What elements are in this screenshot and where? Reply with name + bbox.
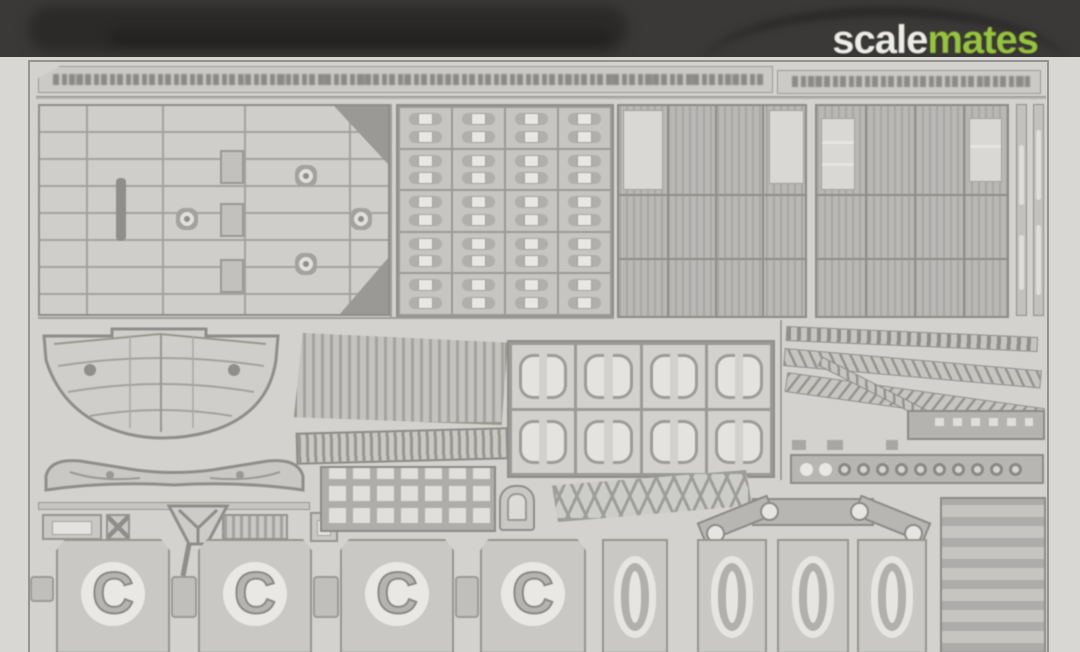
illegible-etched-text-right [792, 76, 1032, 87]
curved-platform-part [38, 320, 284, 448]
narrow-strip-part [1016, 104, 1027, 316]
door-split-line [822, 163, 854, 166]
sprue-tab [827, 440, 843, 450]
narrow-strip-part [1033, 104, 1044, 316]
deck-opening [350, 208, 372, 230]
panel-seam [619, 258, 805, 260]
ribbed-bar-part [296, 427, 509, 465]
clamp-part [400, 108, 451, 148]
x-brace-part [106, 514, 130, 540]
c-grill-ring: C [365, 562, 429, 626]
davit-bracket-pair [577, 411, 639, 474]
strip-ring [914, 463, 927, 476]
panel-seam [817, 258, 1007, 260]
angled-bracket-part [694, 492, 932, 546]
clamp-part [559, 150, 610, 190]
deck-seam [162, 106, 164, 314]
deck-opening [176, 208, 198, 230]
bracket-hole [760, 502, 779, 521]
c-grill-part: C [56, 539, 170, 652]
clamp-parts-grid [396, 104, 614, 318]
clamp-part [453, 274, 504, 314]
strip-hole [800, 463, 813, 476]
c-grill-ring: C [223, 562, 287, 626]
sprue-runner [780, 320, 782, 480]
dome-part [499, 485, 535, 531]
deck-hatch [220, 259, 244, 293]
ladder-rail-part [786, 326, 1038, 352]
c-grill-part: C [340, 539, 454, 652]
c-grill-part: C [480, 539, 586, 652]
panel-seam [817, 194, 1007, 196]
pe-fret-product-photo: scalemates [0, 0, 1080, 652]
scalemates-watermark: scalemates [832, 18, 1038, 63]
c-letter: C [92, 565, 134, 623]
panel-seam [963, 106, 965, 316]
oval-ring-part [602, 539, 668, 652]
clamp-part [506, 191, 557, 231]
clamp-part [453, 150, 504, 190]
clamp-part [506, 274, 557, 314]
clamp-part [506, 108, 557, 148]
strip-ring [1009, 463, 1022, 476]
davit-bracket-pair [512, 345, 574, 408]
blurred-package-shadow [110, 30, 610, 46]
fret-edge-text-strip-right [777, 70, 1041, 94]
strip-slot [1019, 145, 1024, 205]
oval-ring [711, 556, 753, 638]
clamp-part [400, 233, 451, 273]
davit-bracket-pair [577, 345, 639, 408]
clamp-part [559, 191, 610, 231]
photoetch-fret-plate: C C C C [28, 60, 1049, 652]
fret-edge-divider [36, 96, 1046, 99]
deck-opening [295, 165, 317, 187]
ribbed-wall-panel-right [815, 104, 1009, 318]
door-split-line [822, 141, 854, 144]
clamp-part [506, 150, 557, 190]
sprue-connector [313, 576, 339, 618]
strip-slot [1036, 225, 1041, 295]
davit-bracket-pair [512, 411, 574, 474]
part-slot [52, 521, 92, 535]
clamp-part [400, 150, 451, 190]
strip-ring [971, 463, 984, 476]
small-ribbed-part [42, 514, 102, 540]
deck-slot [116, 178, 126, 241]
panel-door [769, 110, 804, 184]
door-split-line [970, 145, 1001, 148]
panel-seam [667, 106, 669, 316]
deck-hatch [220, 203, 244, 237]
davit-bracket-pair [708, 411, 770, 474]
deck-panel-part [38, 104, 390, 316]
photo-background: C C C C [0, 57, 1080, 652]
strip-ring [838, 463, 851, 476]
panel-door [821, 118, 855, 190]
clamp-part [453, 233, 504, 273]
clamp-part [559, 108, 610, 148]
davit-bracket-pair [643, 345, 705, 408]
c-letter: C [512, 565, 554, 623]
ribbed-skewed-panel [294, 327, 508, 425]
oval-ring-part [777, 539, 849, 652]
clamp-part [453, 108, 504, 148]
deck-opening [295, 253, 317, 275]
sprue-runner [38, 317, 614, 319]
sprue-connector [30, 576, 54, 602]
deck-seam [86, 106, 88, 314]
c-grill-ring: C [81, 562, 145, 626]
strip-slot [1019, 235, 1024, 290]
sprue-tab [886, 440, 898, 450]
clamp-part [400, 191, 451, 231]
strip-ring [933, 463, 946, 476]
panel-seam [715, 106, 717, 316]
hole-strip-part [790, 454, 1044, 484]
deck-shaded-corner [334, 106, 388, 164]
strip-slot [1036, 130, 1041, 200]
c-grill-ring: C [501, 562, 565, 626]
wavy-awning-part [40, 448, 310, 500]
panel-seam [914, 106, 916, 316]
fret-parts-layer: C C C C [30, 62, 1047, 652]
panel-seam [619, 194, 805, 196]
deck-seam [244, 106, 246, 314]
c-grill-part: C [198, 539, 312, 652]
davit-bracket-pair [643, 411, 705, 474]
small-grille-part [222, 514, 288, 540]
watermark-scale-text: scale [832, 18, 927, 62]
sprue-connector [455, 576, 479, 618]
clamp-part [400, 274, 451, 314]
sprue-tab [792, 440, 806, 450]
deck-seam [349, 106, 351, 314]
strip-hole [819, 463, 832, 476]
deck-shaded-corner [340, 258, 388, 314]
sprue-runner [390, 104, 392, 318]
square-grating-part [320, 466, 496, 532]
bracket-hole [850, 502, 869, 521]
watermark-mates-text: mates [927, 18, 1038, 62]
oval-ring [871, 556, 913, 638]
panel-door [969, 118, 1002, 182]
oval-ring-part [697, 539, 767, 652]
panel-seam [762, 106, 764, 316]
oval-ring [792, 556, 834, 638]
c-letter: C [376, 565, 418, 623]
davit-bracket-pair [708, 345, 770, 408]
davit-brackets-grid [507, 340, 775, 478]
toothed-bracket-part [907, 410, 1045, 440]
oval-ring-part [857, 539, 927, 652]
clamp-part [453, 191, 504, 231]
strip-ring [857, 463, 870, 476]
oval-ring [614, 556, 656, 638]
illegible-etched-text [53, 74, 764, 85]
clamp-part [506, 233, 557, 273]
c-letter: C [234, 565, 276, 623]
ribbed-wall-panel-left [617, 104, 807, 318]
striped-ladder-panel [940, 497, 1046, 652]
panel-door [623, 110, 663, 190]
strip-ring [952, 463, 965, 476]
sprue-connector [171, 576, 197, 618]
panel-seam [865, 106, 867, 316]
clamp-part [559, 233, 610, 273]
strip-ring [990, 463, 1003, 476]
clamp-part [559, 274, 610, 314]
deck-hatch [220, 150, 244, 184]
fret-edge-text-strip-left [38, 66, 773, 93]
strip-ring [895, 463, 908, 476]
strip-ring [876, 463, 889, 476]
